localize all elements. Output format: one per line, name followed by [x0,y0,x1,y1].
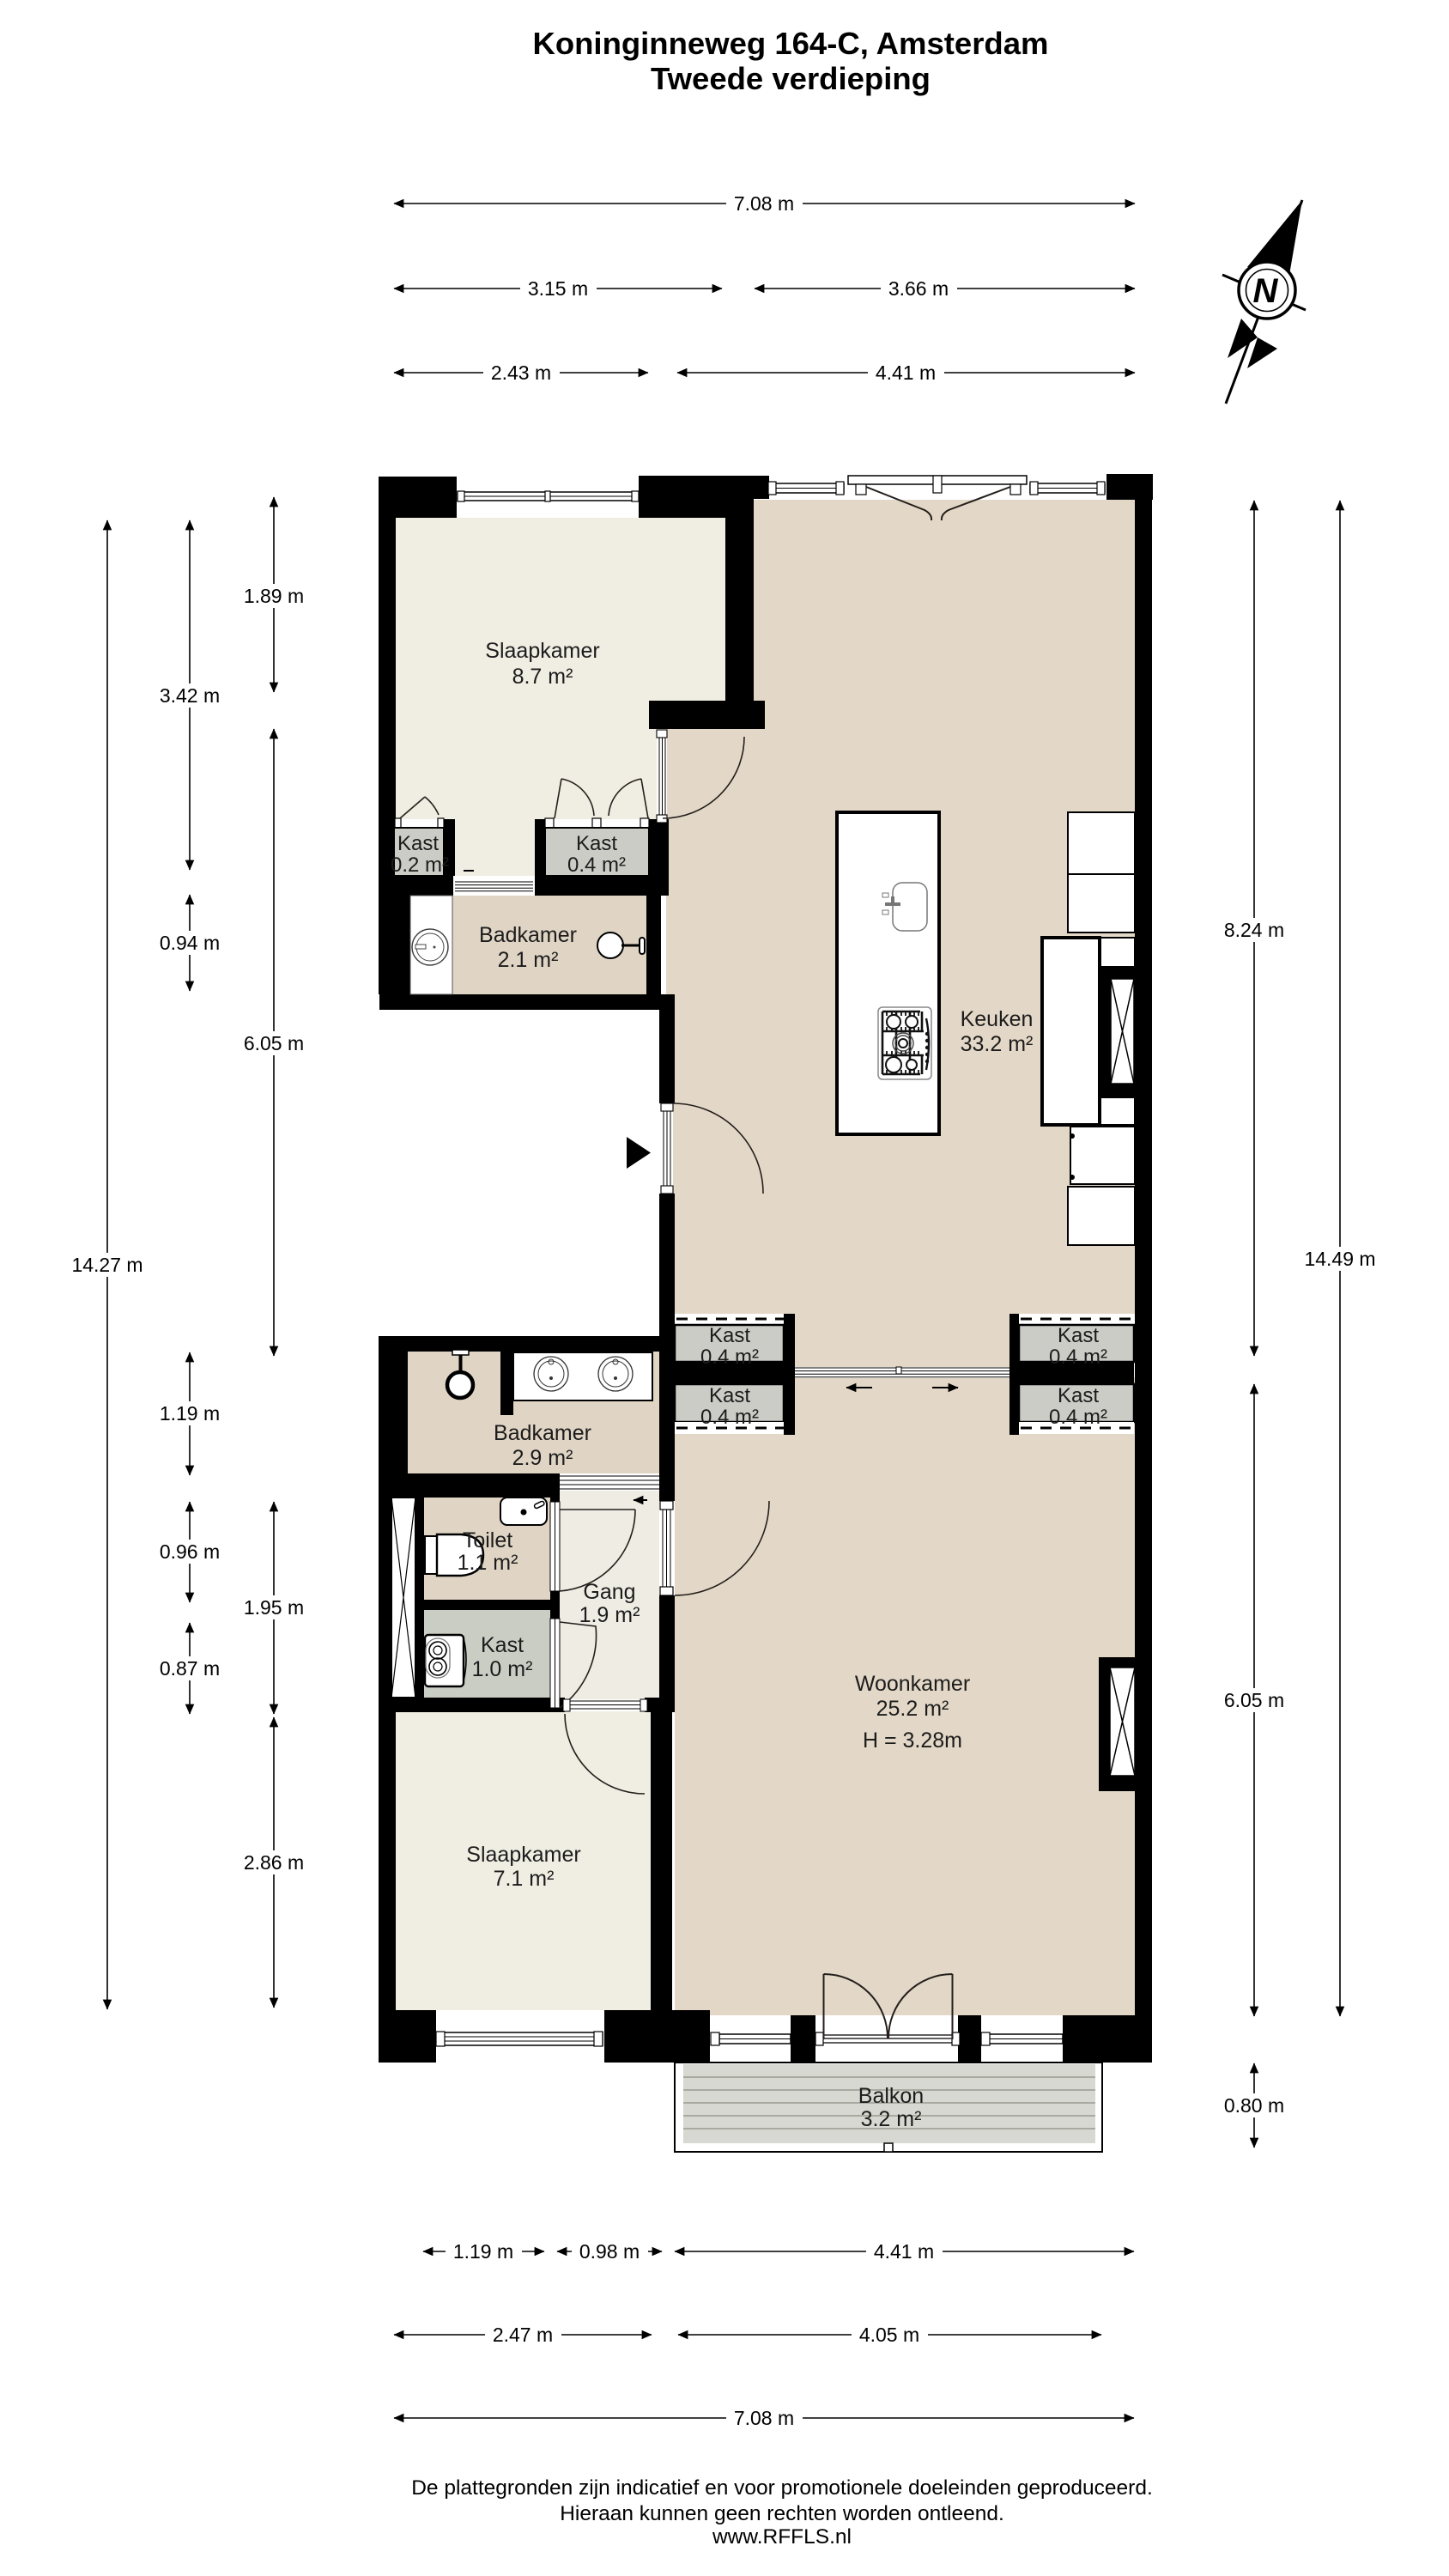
svg-text:1.19 m: 1.19 m [160,1402,220,1425]
svg-text:Badkamer: Badkamer [494,1421,591,1445]
svg-text:Kast: Kast [397,832,439,855]
svg-text:25.2 m²: 25.2 m² [876,1697,949,1721]
svg-text:7.08 m: 7.08 m [734,2407,794,2429]
svg-text:1.1 m²: 1.1 m² [458,1551,518,1575]
svg-text:Kast: Kast [1058,1384,1099,1407]
svg-text:2.43 m: 2.43 m [491,361,551,384]
svg-text:2.47 m: 2.47 m [493,2324,553,2346]
svg-text:2.86 m: 2.86 m [244,1851,304,1874]
svg-text:Kast: Kast [709,1384,750,1407]
svg-text:1.19 m: 1.19 m [453,2240,513,2263]
svg-text:0.4 m²: 0.4 m² [1049,1346,1107,1369]
svg-text:8.24 m: 8.24 m [1224,919,1284,941]
svg-text:Keuken: Keuken [961,1007,1034,1031]
svg-text:0.94 m: 0.94 m [160,932,220,954]
svg-text:3.66 m: 3.66 m [888,277,949,300]
svg-text:Woonkamer: Woonkamer [855,1672,970,1696]
svg-text:De plattegronden zijn indicati: De plattegronden zijn indicatief en voor… [411,2476,1153,2500]
svg-text:Kast: Kast [576,832,617,855]
svg-text:1.9 m²: 1.9 m² [579,1603,640,1627]
svg-text:1.89 m: 1.89 m [244,585,304,607]
svg-text:Kast: Kast [1058,1324,1099,1347]
svg-text:0.2 m²: 0.2 m² [391,854,449,877]
svg-text:14.27 m: 14.27 m [71,1254,142,1276]
svg-text:1.0 m²: 1.0 m² [472,1657,533,1681]
svg-text:14.49 m: 14.49 m [1304,1248,1375,1270]
svg-text:0.87 m: 0.87 m [160,1657,220,1680]
svg-text:4.05 m: 4.05 m [859,2324,919,2346]
svg-text:3.42 m: 3.42 m [160,684,220,707]
svg-text:4.41 m: 4.41 m [876,361,936,384]
svg-text:Koninginneweg 164-C, Amsterdam: Koninginneweg 164-C, Amsterdam [532,26,1048,61]
svg-text:Gang: Gang [583,1580,635,1604]
svg-text:7.1 m²: 7.1 m² [494,1867,555,1891]
svg-text:www.RFFLS.nl: www.RFFLS.nl [712,2525,852,2549]
svg-text:0.4 m²: 0.4 m² [567,854,626,877]
svg-text:33.2 m²: 33.2 m² [961,1032,1034,1056]
svg-text:N: N [1253,272,1279,310]
svg-text:Slaapkamer: Slaapkamer [485,639,599,663]
svg-text:0.4 m²: 0.4 m² [1049,1406,1107,1429]
svg-text:0.98 m: 0.98 m [579,2240,640,2263]
svg-text:8.7 m²: 8.7 m² [512,665,573,689]
svg-text:7.08 m: 7.08 m [734,192,794,215]
svg-text:Balkon: Balkon [858,2084,924,2108]
svg-text:3.15 m: 3.15 m [528,277,588,300]
svg-text:1.95 m: 1.95 m [244,1596,304,1619]
svg-text:2.9 m²: 2.9 m² [512,1446,573,1470]
svg-text:0.4 m²: 0.4 m² [700,1406,759,1429]
svg-text:Tweede verdieping: Tweede verdieping [651,61,931,96]
svg-text:H = 3.28m: H = 3.28m [863,1728,962,1753]
svg-text:4.41 m: 4.41 m [874,2240,934,2263]
svg-text:Kast: Kast [709,1324,750,1347]
svg-text:Kast: Kast [481,1633,524,1657]
svg-text:3.2 m²: 3.2 m² [861,2107,922,2131]
svg-text:6.05 m: 6.05 m [244,1032,304,1054]
svg-text:2.1 m²: 2.1 m² [498,948,559,972]
svg-text:0.96 m: 0.96 m [160,1540,220,1563]
svg-text:Hieraan kunnen geen rechten wo: Hieraan kunnen geen rechten worden ontle… [560,2502,1004,2525]
svg-text:0.4 m²: 0.4 m² [700,1346,759,1369]
svg-text:Slaapkamer: Slaapkamer [466,1843,580,1867]
svg-text:Toilet: Toilet [463,1528,512,1552]
svg-text:6.05 m: 6.05 m [1224,1689,1284,1711]
svg-text:0.80 m: 0.80 m [1224,2094,1284,2117]
svg-text:Badkamer: Badkamer [479,923,577,947]
